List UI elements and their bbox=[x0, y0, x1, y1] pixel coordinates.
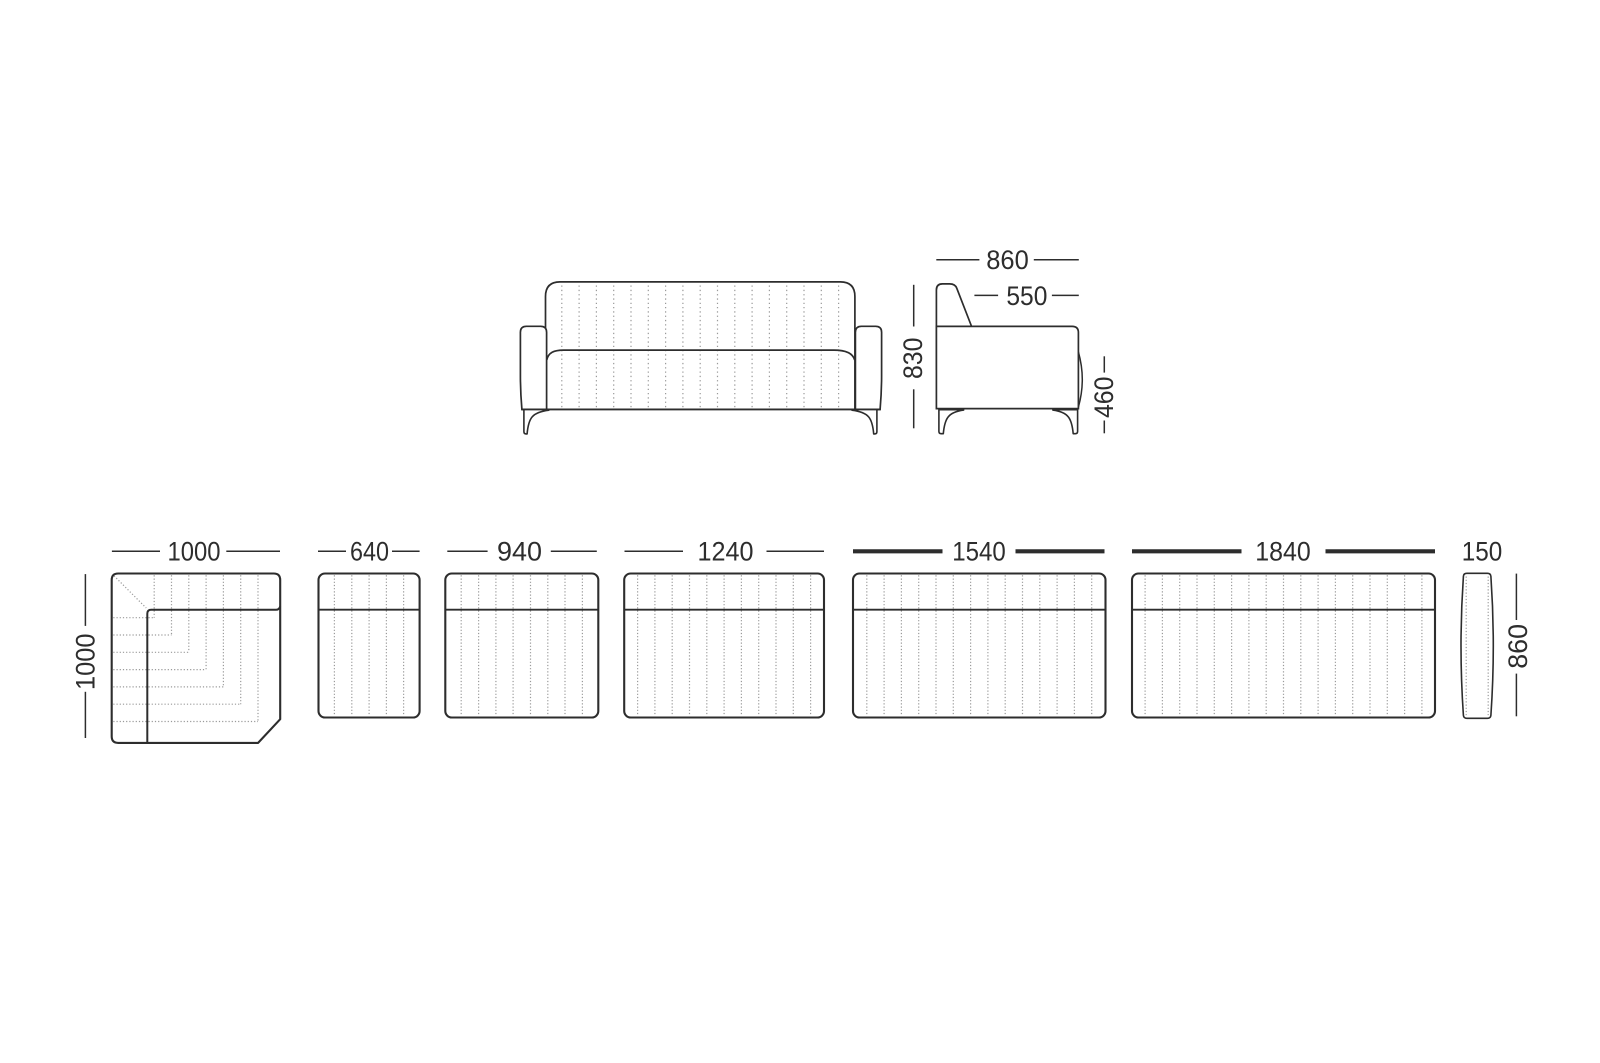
svg-text:1540: 1540 bbox=[952, 536, 1006, 566]
svg-text:860: 860 bbox=[1503, 624, 1533, 669]
svg-text:460: 460 bbox=[1089, 377, 1119, 419]
svg-text:1240: 1240 bbox=[698, 536, 754, 566]
svg-text:1000: 1000 bbox=[168, 536, 221, 566]
svg-text:640: 640 bbox=[350, 536, 389, 566]
svg-text:1840: 1840 bbox=[1255, 536, 1311, 566]
svg-text:940: 940 bbox=[497, 536, 542, 566]
svg-text:830: 830 bbox=[898, 338, 928, 380]
svg-text:1000: 1000 bbox=[70, 633, 100, 690]
svg-text:150: 150 bbox=[1462, 536, 1503, 566]
svg-text:860: 860 bbox=[986, 245, 1029, 275]
svg-text:550: 550 bbox=[1006, 281, 1047, 311]
